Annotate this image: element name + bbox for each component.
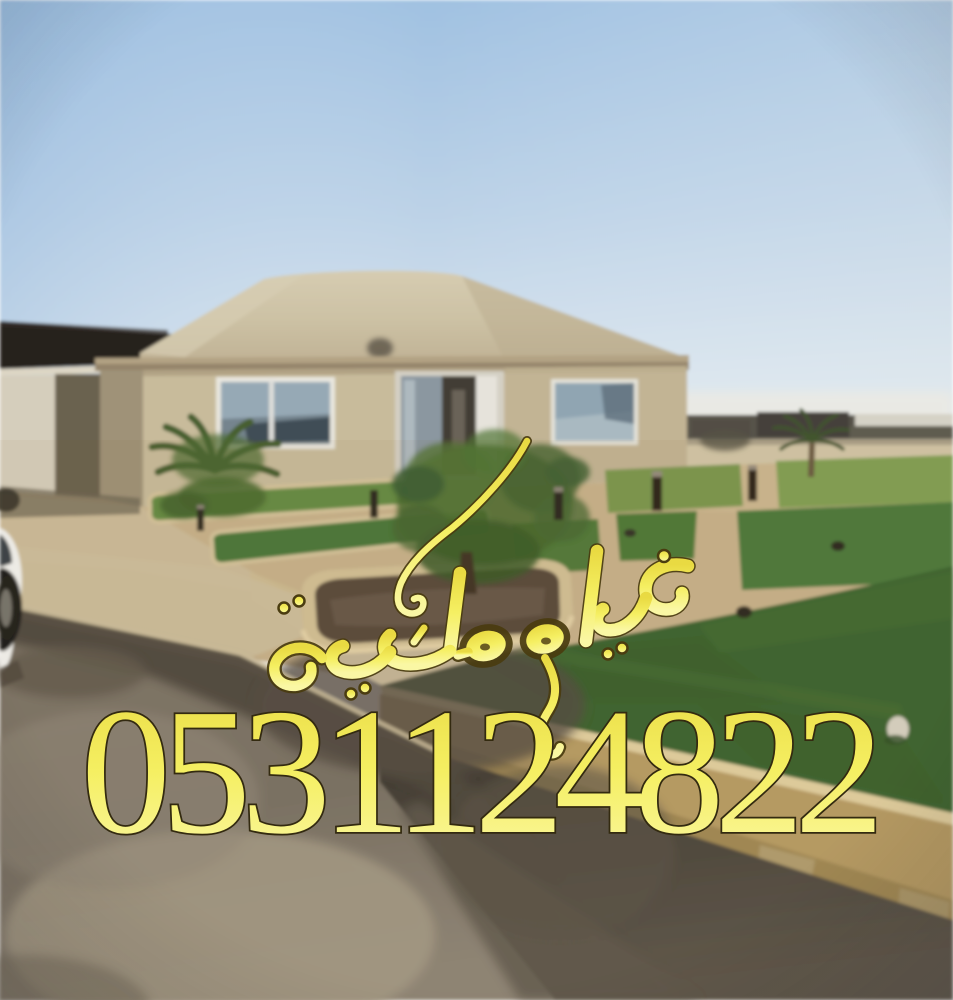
- svg-text:0531124822: 0531124822: [81, 672, 875, 871]
